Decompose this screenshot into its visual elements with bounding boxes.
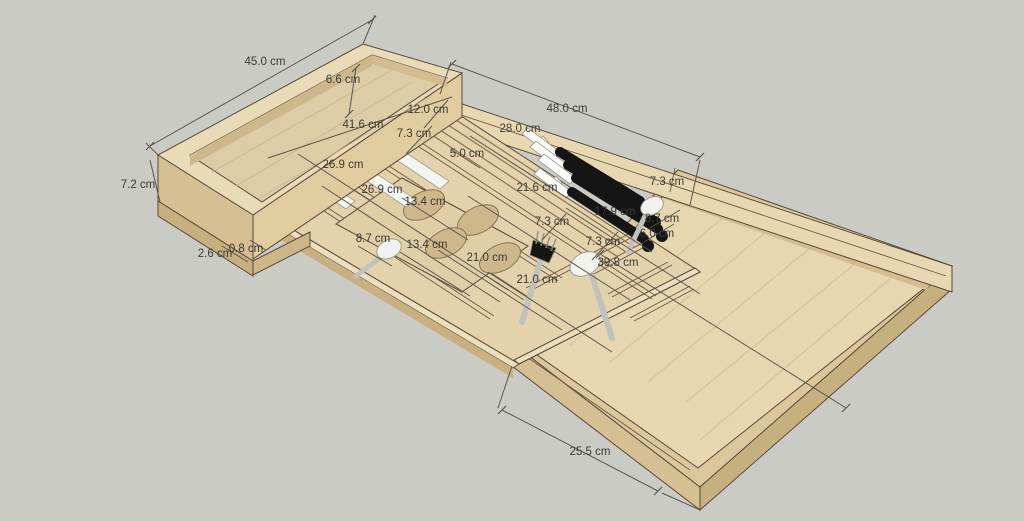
dimension-label: 45.0 cm [245, 56, 286, 68]
dimension-label: 21.6 cm [517, 182, 558, 194]
dimension-label: 13.4 cm [405, 196, 446, 208]
dimension-label: 21.0 cm [467, 252, 508, 264]
dimension-label: 26.9 cm [362, 184, 403, 196]
dimension-label: 7.3 cm [397, 128, 432, 140]
dimension-label: 7.2 cm [121, 179, 156, 191]
render-canvas: 45.0 cm 6.6 cm 48.0 cm 41.6 cm 12.0 cm 7… [0, 0, 1024, 521]
dimension-label: 12.0 cm [408, 104, 449, 116]
dimension-label: 6.0 cm [640, 228, 675, 240]
dimension-label: 13.4 cm [407, 239, 448, 251]
dimension-label: 6.6 cm [326, 74, 361, 86]
dimension-label: 26.9 cm [323, 159, 364, 171]
dimension-label: 41.6 cm [343, 119, 384, 131]
dimension-label: 17.9 cm [595, 206, 636, 218]
dimension-label: 28.0 cm [500, 123, 541, 135]
dimension-label: 8.7 cm [356, 233, 391, 245]
dimension-label: 21.0 cm [517, 274, 558, 286]
organizer-render: 45.0 cm 6.6 cm 48.0 cm 41.6 cm 12.0 cm 7… [0, 0, 1024, 521]
dimension-label: 39.8 cm [598, 257, 639, 269]
dimension-label: 48.0 cm [547, 103, 588, 115]
dimension-label: 25.5 cm [570, 446, 611, 458]
dimension-label: 5.0 cm [450, 148, 485, 160]
dimension-label: 2.6 cm [198, 248, 233, 260]
dimension-label: 7.3 cm [586, 236, 621, 248]
dimension-label: 0.8 cm [229, 243, 264, 255]
dimension-label: 8.7 cm [645, 213, 680, 225]
dimension-label: 7.3 cm [535, 216, 570, 228]
dimension-label: 7.3 cm [650, 176, 685, 188]
